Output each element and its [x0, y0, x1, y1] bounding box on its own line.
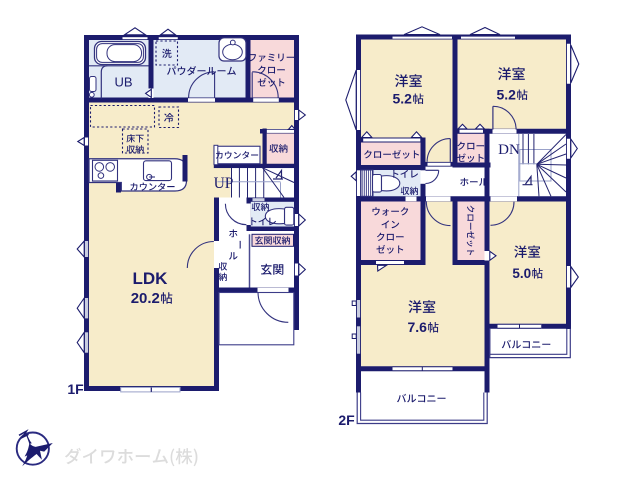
- svg-text:5.0: 5.0: [512, 266, 531, 281]
- svg-text:DN: DN: [498, 142, 520, 158]
- svg-text:UP: UP: [214, 175, 234, 192]
- svg-text:2F: 2F: [338, 412, 355, 428]
- svg-text:UB: UB: [114, 75, 132, 90]
- svg-text:7.6: 7.6: [408, 319, 428, 335]
- svg-text:LDK: LDK: [133, 269, 169, 288]
- svg-text:1F: 1F: [67, 381, 84, 397]
- svg-text:5.2: 5.2: [393, 91, 413, 107]
- svg-text:20.2: 20.2: [131, 290, 160, 307]
- svg-text:5.2: 5.2: [497, 87, 517, 103]
